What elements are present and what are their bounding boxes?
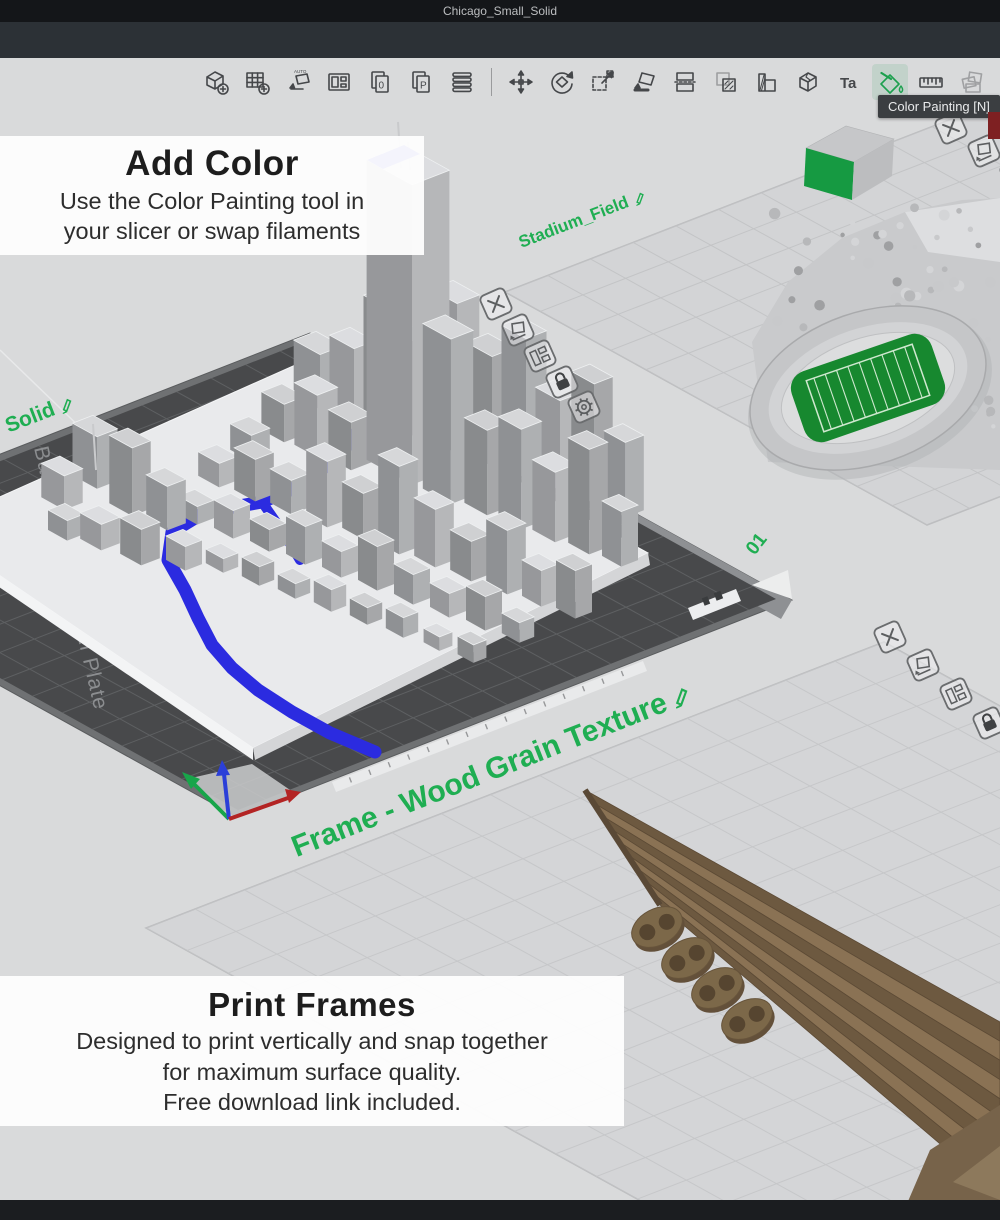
split-button[interactable] [667, 64, 703, 100]
svg-text:0: 0 [379, 81, 385, 92]
clone-button[interactable]: 0 [362, 64, 398, 100]
scale-tool-button[interactable] [585, 64, 621, 100]
svg-text:P: P [420, 81, 427, 92]
paste-button[interactable]: P [403, 64, 439, 100]
text-tool-button[interactable]: Ta [831, 64, 867, 100]
print-frames-line1: Designed to print vertically and snap to… [0, 1026, 624, 1057]
print-frames-title: Print Frames [0, 986, 624, 1024]
print-frames-line2: for maximum surface quality. [0, 1057, 624, 1088]
variable-layer-height-button[interactable] [708, 64, 744, 100]
add-object-button[interactable] [198, 64, 234, 100]
lay-on-face-button[interactable] [626, 64, 662, 100]
add-plate-button[interactable] [239, 64, 275, 100]
support-painting-button[interactable] [749, 64, 785, 100]
toolbar-separator [491, 68, 492, 96]
window-title: Chicago_Small_Solid [443, 4, 557, 18]
bottom-bar [0, 1200, 1000, 1220]
layers-button[interactable] [444, 64, 480, 100]
cut-tool-button[interactable] [790, 64, 826, 100]
svg-text:Ta: Ta [840, 75, 857, 92]
title-bar: Chicago_Small_Solid [0, 0, 1000, 22]
red-strip [988, 112, 1000, 139]
app-window: Chicago_Small_Solid [0, 0, 1000, 1220]
add-color-callout: Add Color Use the Color Painting tool in… [0, 136, 424, 255]
add-color-line1: Use the Color Painting tool in [0, 186, 424, 216]
color-painting-tooltip: Color Painting [N] [878, 95, 1000, 118]
add-color-title: Add Color [0, 144, 424, 184]
arrange-button[interactable] [321, 64, 357, 100]
svg-text:AUTO: AUTO [294, 69, 307, 74]
move-tool-button[interactable] [503, 64, 539, 100]
print-frames-callout: Print Frames Designed to print verticall… [0, 976, 624, 1126]
print-frames-line3: Free download link included. [0, 1087, 624, 1118]
auto-orient-button[interactable]: AUTO [280, 64, 316, 100]
add-color-line2: your slicer or swap filaments [0, 216, 424, 246]
rotate-tool-button[interactable] [544, 64, 580, 100]
menu-bar [0, 22, 1000, 59]
main-toolbar: AUTO 0 P Ta [0, 58, 1000, 106]
